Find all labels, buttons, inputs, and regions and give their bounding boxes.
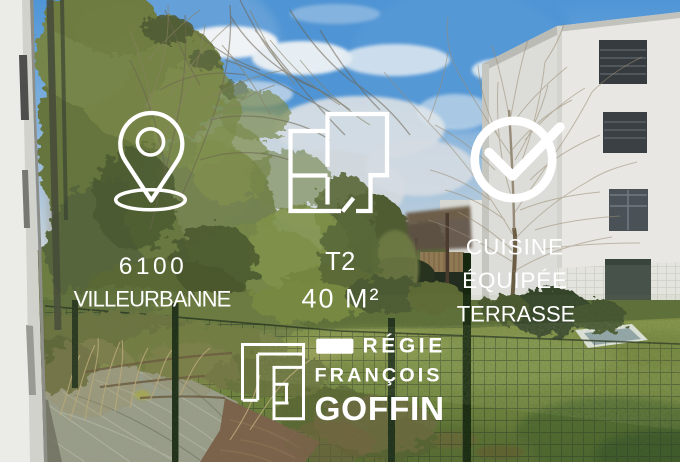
svg-text:RÉGIE: RÉGIE [363,334,446,357]
svg-text:ÉQUIPÉE: ÉQUIPÉE [462,268,568,293]
svg-text:GOFFIN: GOFFIN [315,391,445,428]
svg-text:VILLEURBANNE: VILLEURBANNE [74,286,231,311]
svg-text:FRANÇOIS: FRANÇOIS [315,365,443,387]
svg-text:40 M²: 40 M² [301,284,380,314]
svg-text:TERRASSE: TERRASSE [457,302,576,327]
svg-text:6100: 6100 [119,253,188,280]
svg-text:T2: T2 [325,248,356,276]
svg-text:CUISINE: CUISINE [466,235,564,260]
